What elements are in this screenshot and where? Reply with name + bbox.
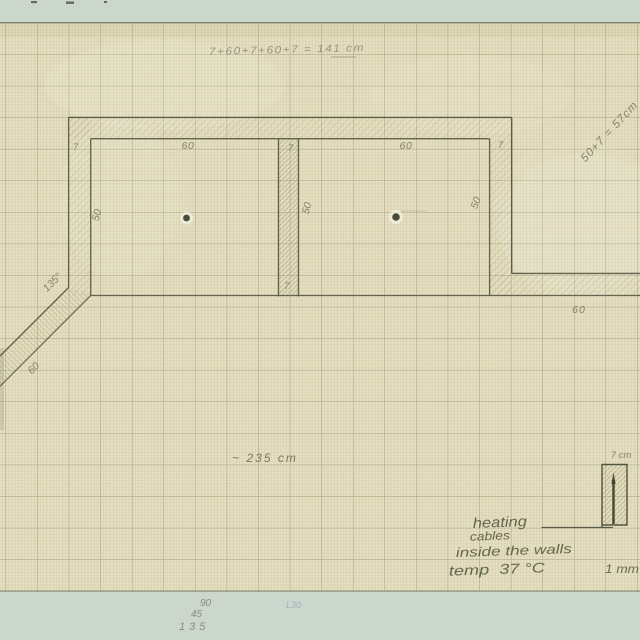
svg-text:7: 7 — [498, 140, 504, 151]
svg-text:7: 7 — [284, 281, 290, 292]
svg-text:cables: cables — [470, 528, 510, 543]
svg-text:45: 45 — [191, 609, 203, 620]
svg-text:7: 7 — [73, 142, 79, 153]
svg-text:~ 235 cm: ~ 235 cm — [232, 451, 298, 465]
svg-text:7: 7 — [288, 143, 294, 154]
svg-text:1 mm: 1 mm — [605, 564, 639, 576]
svg-text:7 cm: 7 cm — [611, 450, 632, 461]
svg-text:60: 60 — [400, 140, 413, 152]
svg-text:60: 60 — [182, 140, 195, 152]
svg-text:135: 135 — [179, 621, 209, 633]
svg-text:temp 37 °C: temp 37 °C — [449, 559, 547, 578]
svg-text:L30: L30 — [286, 600, 301, 610]
svg-text:90: 90 — [200, 598, 212, 609]
svg-text:60: 60 — [572, 304, 586, 316]
